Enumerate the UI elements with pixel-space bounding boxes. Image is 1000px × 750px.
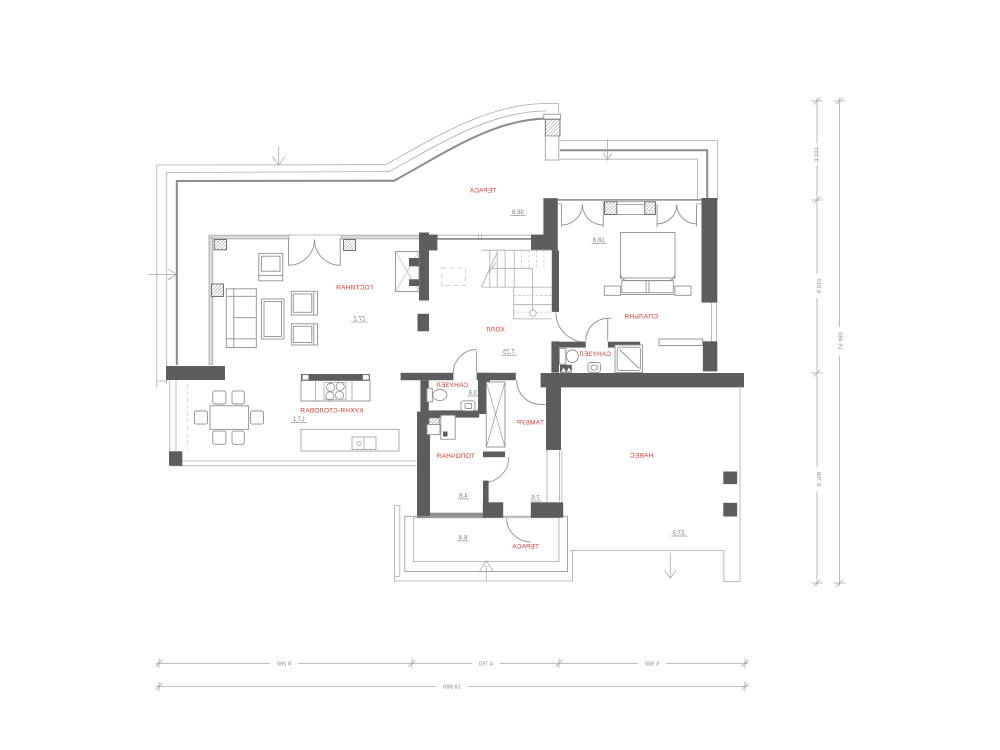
svg-text:КУХНЯ-СТОЛОВАЯ: КУХНЯ-СТОЛОВАЯ [300,407,363,414]
svg-text:7.25: 7.25 [502,349,515,356]
svg-text:САНУЗЕЛ: САНУЗЕЛ [579,351,611,358]
svg-text:5 900: 5 900 [645,661,660,667]
svg-text:6 010: 6 010 [815,279,821,294]
svg-text:НАВЕС: НАВЕС [630,453,654,460]
svg-text:15 480: 15 480 [836,332,842,350]
svg-text:6.4: 6.4 [458,534,467,541]
svg-text:4.6: 4.6 [459,492,468,499]
svg-text:18.8: 18.8 [592,237,605,244]
svg-text:ТОПОЧНАЯ: ТОПОЧНАЯ [436,453,474,460]
svg-text:27.3: 27.3 [672,529,685,536]
svg-text:ТЕРАСА: ТЕРАСА [512,543,539,550]
svg-text:6 750: 6 750 [815,472,821,487]
svg-text:38.8: 38.8 [511,209,524,216]
svg-text:18 880: 18 880 [443,685,461,691]
svg-text:САНУЗЕЛ: САНУЗЕЛ [436,382,468,389]
svg-text:ТАМБУР: ТАМБУР [516,419,544,426]
svg-text:17.1: 17.1 [292,416,305,423]
svg-text:8 280: 8 280 [277,661,292,667]
svg-text:ХОЛЛ: ХОЛЛ [486,327,505,334]
svg-text:ТЕРАСА: ТЕРАСА [469,188,496,195]
svg-text:4 750: 4 750 [479,661,494,667]
svg-text:3 101: 3 101 [813,147,819,162]
svg-text:ГОСТИНАЯ: ГОСТИНАЯ [336,285,373,292]
svg-text:27.2: 27.2 [353,315,366,322]
svg-text:3.8: 3.8 [468,389,477,396]
svg-text:7.6: 7.6 [531,494,540,501]
svg-text:СПАЛЬНЯ: СПАЛЬНЯ [624,314,658,321]
